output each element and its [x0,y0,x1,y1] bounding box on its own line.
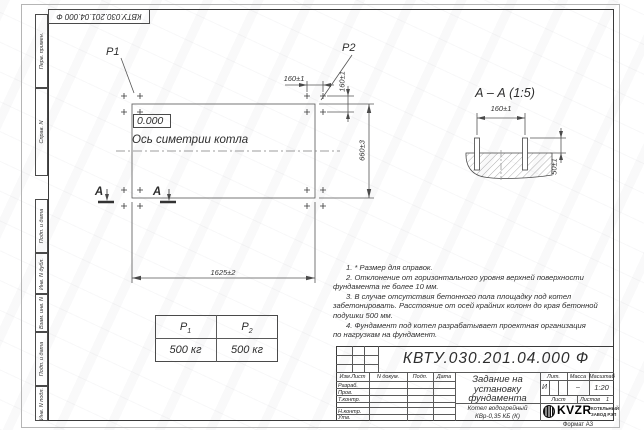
note-line: 1. * Размер для справок. [333,263,621,273]
logo-caption-2: ЗАВОД РЭП [591,412,616,417]
col-podp: Подп. [407,374,433,380]
note-line: забетонировать. Расстояние от осей крайн… [333,301,621,311]
logo-caption-1: КОТЕЛЬНЫЙ [591,406,619,411]
section-cut-letter-2: А [150,186,164,198]
stamp-label: Справ. N [39,120,45,143]
note-line: по нагрузкам на фундамент. [333,330,621,340]
load-point-p1-label: P1 [106,46,130,58]
note-line: подушки 500 мм. [333,311,621,321]
stamp-label: Подп. и дата [39,342,45,376]
titleblock-designation: КВТУ.030.201.04.000 Ф [378,350,614,368]
stamp-vzam-inv: Взам. инв. N [35,294,48,332]
stamp-podp-data-2: Подп. и дата [35,332,48,386]
role-razrab: Разраб. [338,383,358,389]
role-tkontr: Т.контр. [338,397,360,403]
dim-1625: 1625±2 [193,268,253,277]
product-name-line2: КВр-0,35 КБ (К) [455,413,540,420]
role-prov: Пров. [338,390,353,396]
stamp-label: Перв. примен. [39,33,45,70]
note-line: 4. Фундамент под котел разрабатывает про… [333,321,621,331]
section-cut-letter-1: А [92,186,106,198]
mass-label: Масса [567,374,589,380]
load-table-header-p2: Р2 [216,321,278,335]
col-izm-list: Изм.Лист [336,374,369,380]
scale-label: Масштаб [589,374,614,380]
axis-of-symmetry-label: Ось симетрии котла [132,134,248,146]
stamp-perv-primen: Перв. примен. [35,14,48,88]
stamp-inv-podl: Инв. N подл. [35,386,48,421]
section-view-title: А – А (1:5) [455,86,555,100]
note-line: фундамента не более 10 мм. [333,282,621,292]
load-table-value-p1: 500 кг [155,344,216,356]
kvzr-logo-text: KVZR [557,403,592,417]
stamp-label: Подп. и дата [39,209,45,243]
stamp-label: Инв. N подл. [39,387,45,419]
top-designation: КВТУ.030.201.04.000 Ф [49,12,149,21]
dim-section-160: 160±1 [483,104,519,113]
level-mark: 0.000 [133,114,171,128]
format-note: Формат А3 [553,422,603,428]
stamp-sprav-n: Справ. N [35,88,48,176]
load-table-header-p1: Р1 [155,321,216,335]
note-line: 2. Отклонение от горизонтального уровня … [333,273,621,283]
role-utv: Утв. [338,415,351,421]
stamp-podp-data-1: Подп. и дата [35,199,48,253]
kvzr-emblem-icon [543,405,555,418]
mass-value: – [567,384,589,391]
lit-label: Лит. [540,374,567,380]
col-data: Дата [433,374,455,380]
dim-160-vertical: 160±1 [338,64,347,100]
notes-block: 1. * Размер для справок. 2. Отклонение о… [333,263,621,340]
dim-section-50: 50±1 [550,151,559,183]
dim-160-horizontal: 160±1 [276,74,312,83]
stamp-label: Взам. инв. N [39,297,45,329]
role-nkontr: Н.контр. [338,409,361,415]
lit-value: И [540,384,549,391]
sheets-value: 1 [606,397,609,403]
stamp-inv-dubl: Инв. N дубл. [35,253,48,294]
note-line: 3. В случае отсутствия бетонного пола пл… [333,292,621,302]
load-table-value-p2: 500 кг [216,344,278,356]
scale-value: 1:20 [589,383,614,392]
sheets-label: Листов [580,397,600,403]
stamp-label: Инв. N дубл. [39,258,45,290]
top-designation-box: КВТУ.030.201.04.000 Ф [48,9,150,24]
product-name-line1: Котел водогрейный [455,405,540,412]
dim-660: 660±3 [358,129,367,173]
load-point-p2-label: P2 [342,42,366,54]
drawing-sheet: Перв. примен. Справ. N Подп. и дата Инв.… [0,0,644,430]
col-n-dokum: N докум. [369,374,407,380]
sheet-label: Лист [540,397,577,403]
doc-title-line3: фундамента [455,393,540,404]
